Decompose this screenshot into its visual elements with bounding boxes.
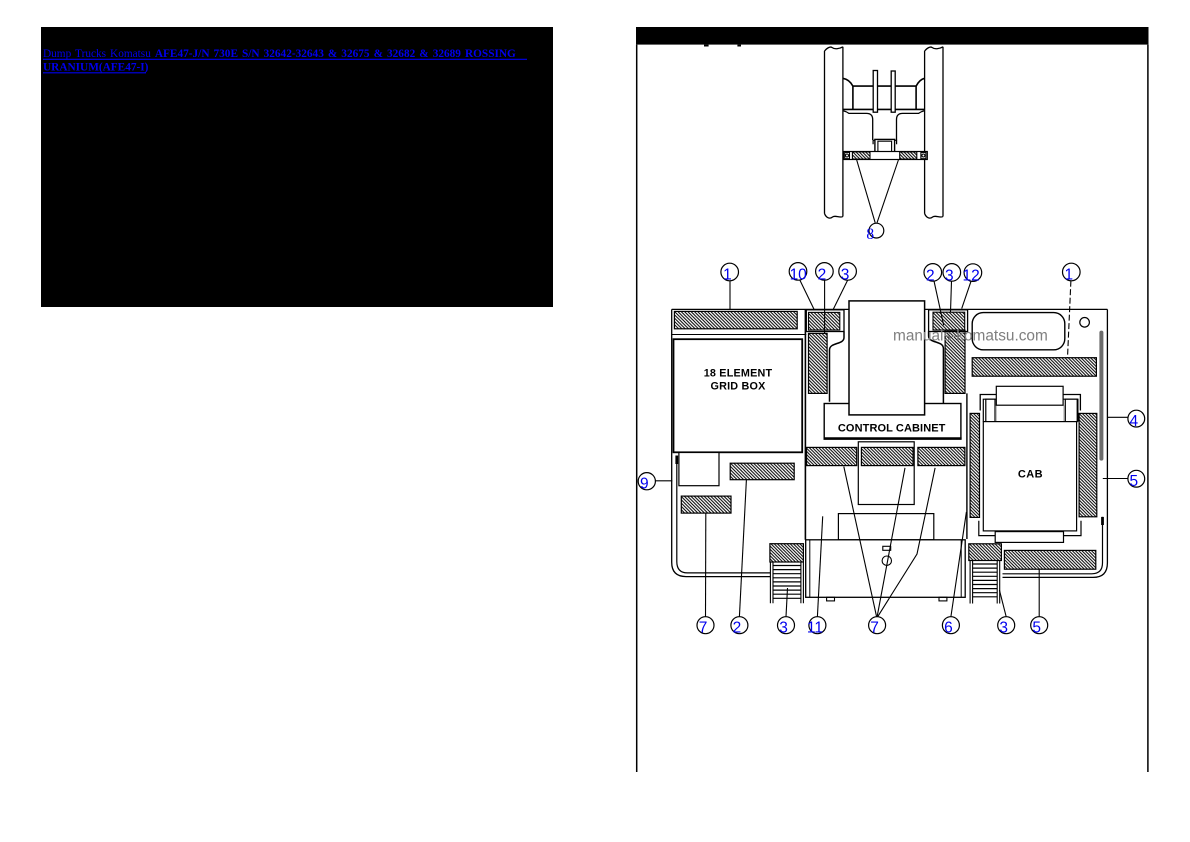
svg-text:1: 1 bbox=[723, 266, 732, 283]
svg-text:2: 2 bbox=[733, 619, 742, 636]
svg-text:12: 12 bbox=[962, 268, 979, 285]
svg-text:7: 7 bbox=[870, 619, 879, 636]
svg-text:2: 2 bbox=[926, 267, 935, 284]
svg-text:2: 2 bbox=[818, 267, 827, 284]
svg-text:18 ELEMENT: 18 ELEMENT bbox=[704, 368, 773, 380]
svg-text:1: 1 bbox=[1064, 266, 1073, 283]
svg-text:9: 9 bbox=[640, 475, 649, 492]
svg-text:5: 5 bbox=[1129, 473, 1138, 490]
svg-text:10: 10 bbox=[790, 267, 808, 284]
svg-text:CAB: CAB bbox=[1018, 469, 1043, 481]
svg-text:URANIUM(AFE47-I): URANIUM(AFE47-I) bbox=[43, 62, 149, 74]
svg-text:CONTROL CABINET: CONTROL CABINET bbox=[838, 422, 946, 434]
svg-text:5: 5 bbox=[1032, 619, 1041, 636]
svg-text:4: 4 bbox=[1129, 413, 1138, 430]
svg-text:8: 8 bbox=[866, 226, 874, 243]
svg-text:3: 3 bbox=[841, 267, 850, 284]
svg-text:Dump Trucks Komatsu AFE47-J/N: Dump Trucks Komatsu AFE47-J/N 730E S/N 3… bbox=[43, 48, 516, 60]
svg-text:GRID BOX: GRID BOX bbox=[711, 381, 767, 393]
svg-text:7: 7 bbox=[699, 619, 708, 636]
svg-text:6: 6 bbox=[944, 619, 953, 636]
svg-text:manuals-komatsu.com: manuals-komatsu.com bbox=[893, 328, 1048, 345]
svg-text:3: 3 bbox=[999, 619, 1008, 636]
svg-text:11: 11 bbox=[807, 619, 823, 636]
svg-text:3: 3 bbox=[945, 267, 954, 284]
svg-text:3: 3 bbox=[779, 619, 788, 636]
